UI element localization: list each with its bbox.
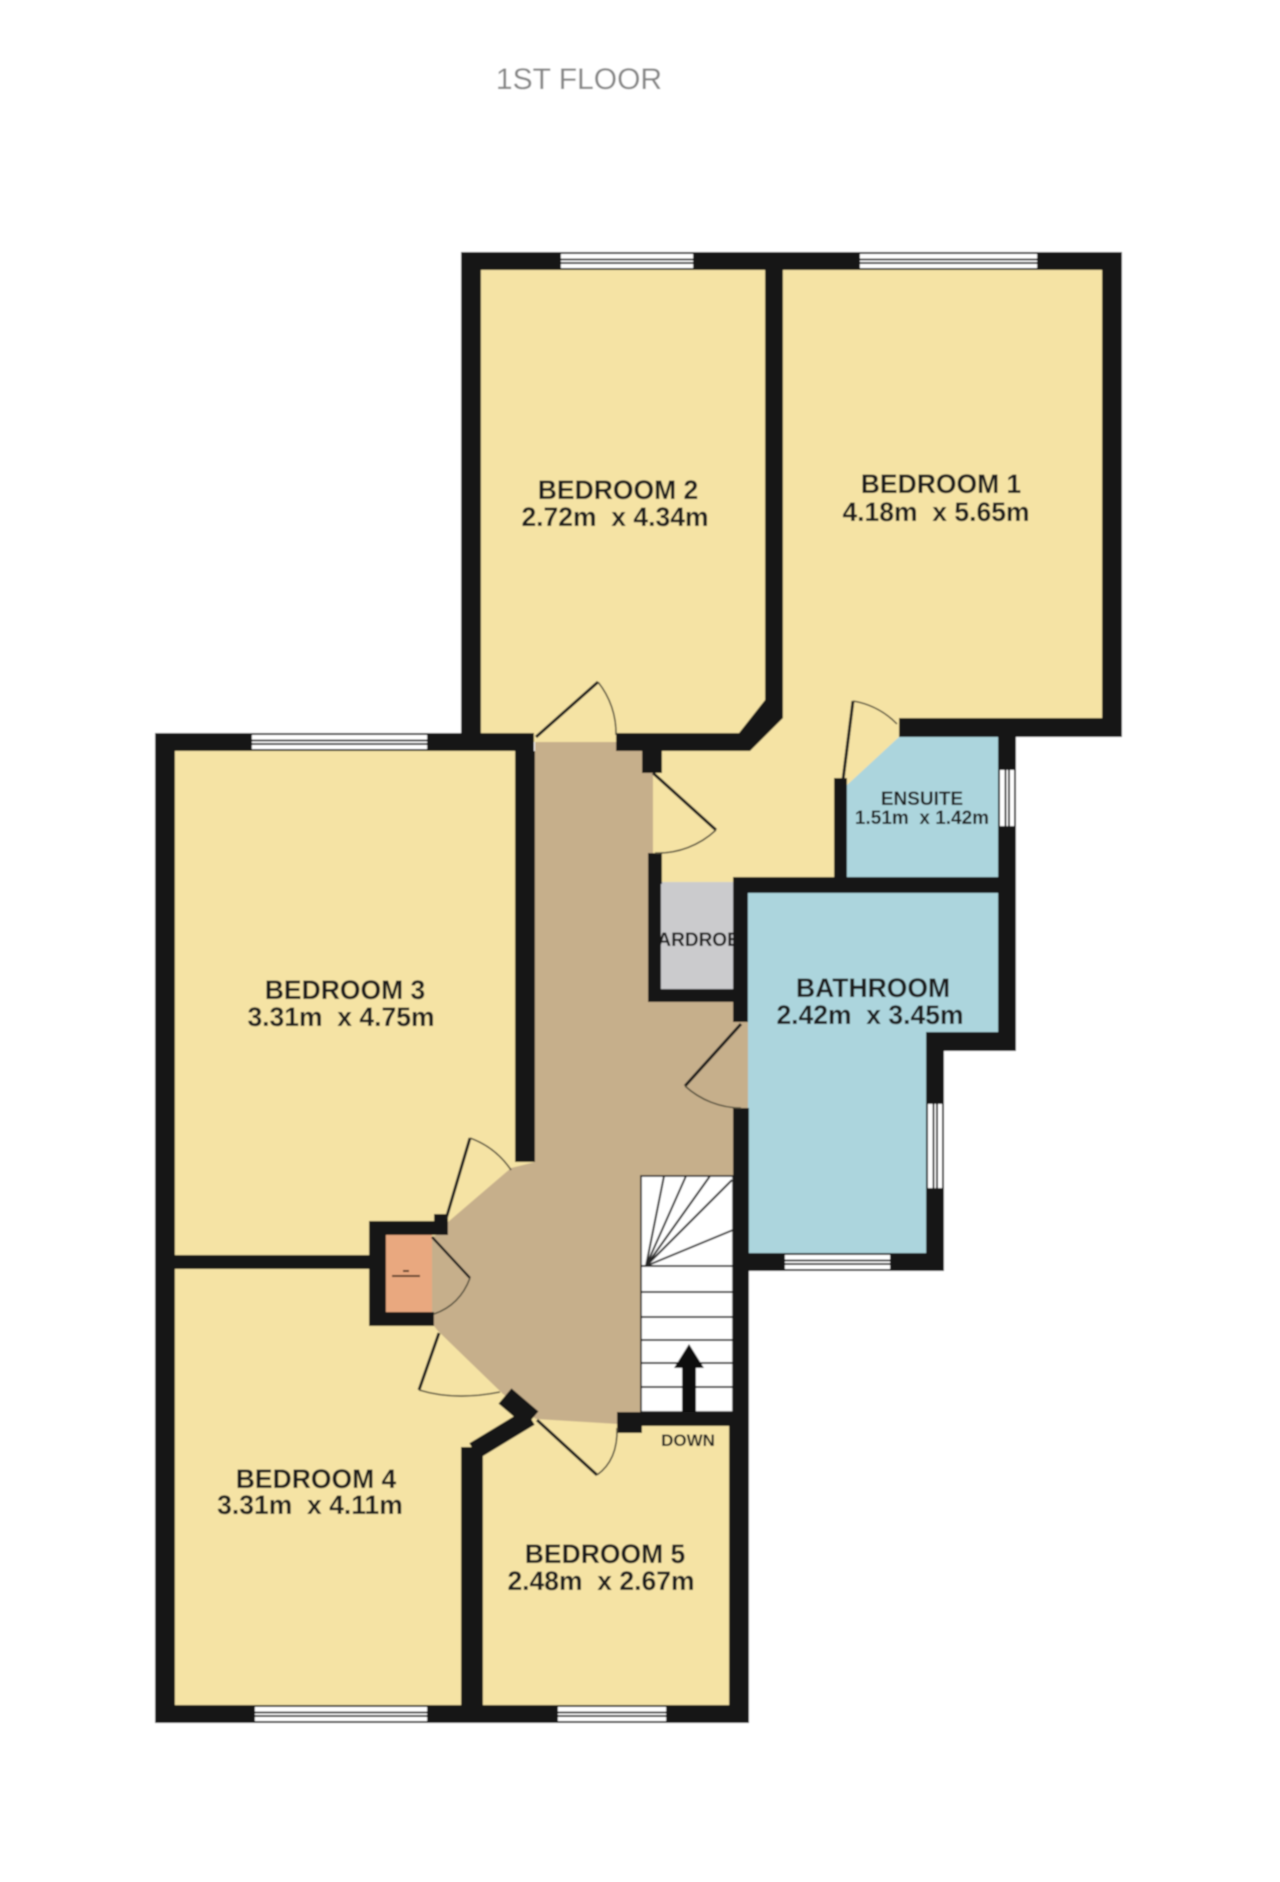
svg-text:DOWN: DOWN [661,1431,715,1450]
svg-text:4.18m x 5.65m: 4.18m x 5.65m [842,497,1029,527]
svg-text:2.48m x 2.67m: 2.48m x 2.67m [507,1566,694,1596]
svg-text:1ST FLOOR: 1ST FLOOR [496,63,662,96]
svg-text:BEDROOM 3: BEDROOM 3 [265,975,426,1005]
svg-text:BATHROOM: BATHROOM [796,973,950,1003]
svg-text:1.51m x 1.42m: 1.51m x 1.42m [855,808,989,829]
svg-text:ENSUITE: ENSUITE [881,789,963,810]
svg-text:BEDROOM 5: BEDROOM 5 [525,1539,686,1569]
svg-text:2.72m x 4.34m: 2.72m x 4.34m [521,502,708,532]
svg-text:2.42m x 3.45m: 2.42m x 3.45m [776,1000,963,1030]
svg-text:BEDROOM 1: BEDROOM 1 [861,469,1022,499]
svg-text:BEDROOM 2: BEDROOM 2 [538,475,699,505]
svg-text:3.31m x 4.75m: 3.31m x 4.75m [247,1002,434,1032]
svg-text:3.31m x 4.11m: 3.31m x 4.11m [217,1490,403,1520]
